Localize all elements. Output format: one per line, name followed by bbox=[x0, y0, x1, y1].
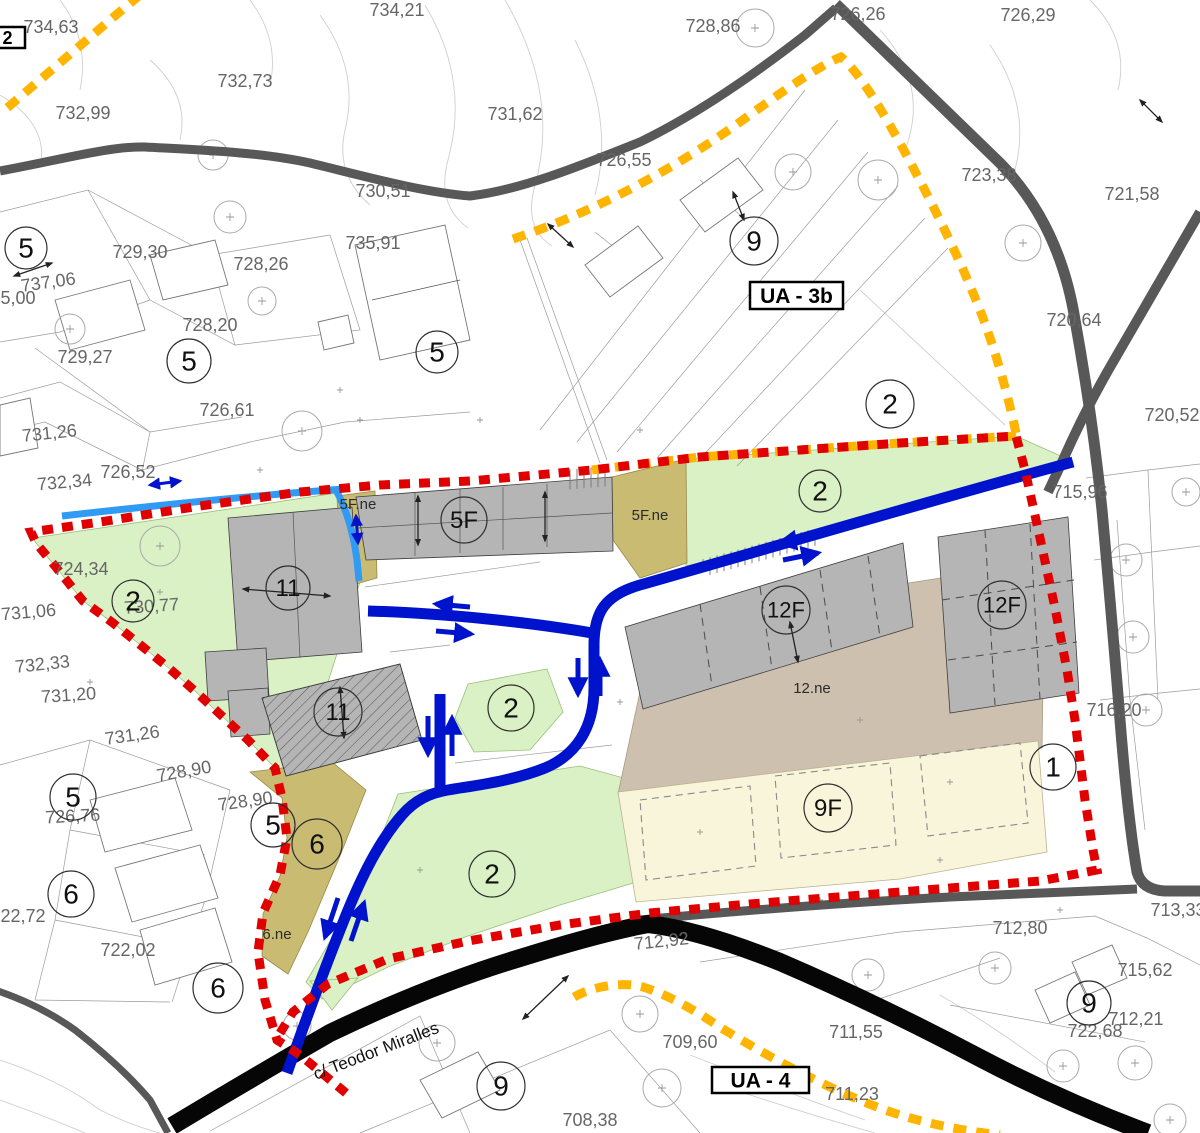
zoning-plan-map: 734,21734,63732,99732,73731,62728,86726,… bbox=[0, 0, 1200, 1133]
elevation-label: 708,38 bbox=[562, 1110, 617, 1130]
zone-number: 11 bbox=[276, 575, 301, 602]
elevation-label: 716,20 bbox=[1086, 700, 1141, 720]
elevation-label: 711,23 bbox=[825, 1084, 879, 1104]
elevation-label: 735,00 bbox=[0, 288, 36, 308]
sector-box-text: UA - 4 bbox=[731, 1070, 791, 1093]
zone-number: 12F bbox=[983, 592, 1021, 617]
elevation-label: 712,80 bbox=[992, 918, 1047, 938]
elevation-label: 721,58 bbox=[1104, 184, 1159, 204]
zone-number: 5 bbox=[429, 337, 445, 368]
area-use-label: 12.ne bbox=[793, 680, 831, 697]
elevation-label: 726,29 bbox=[1000, 5, 1055, 25]
sector-box-text: 2 bbox=[2, 28, 12, 48]
zone-number: 11 bbox=[326, 699, 351, 726]
elevation-label: 726,55 bbox=[596, 150, 651, 170]
zone-number: 2 bbox=[125, 586, 141, 617]
elevation-label: 728,26 bbox=[233, 254, 288, 274]
zone-number: 9 bbox=[1081, 988, 1097, 1019]
elevation-label: 711,55 bbox=[829, 1022, 883, 1042]
elevation-label: 732,73 bbox=[217, 71, 272, 91]
elevation-label: 712,21 bbox=[1108, 1009, 1163, 1029]
zone-number: 5 bbox=[181, 346, 197, 377]
zone-number: 9F bbox=[814, 795, 842, 822]
area-use-label: 5F.ne bbox=[340, 496, 377, 513]
zone-number: 1 bbox=[1045, 752, 1061, 783]
elevation-label: 728,20 bbox=[182, 315, 237, 335]
zone-number: 2 bbox=[882, 389, 898, 420]
area-use-label: 5F.ne bbox=[632, 507, 669, 524]
zone-number: 6 bbox=[210, 973, 226, 1004]
sector-box-label: 2 bbox=[0, 27, 25, 48]
elevation-label: 720,52 bbox=[1144, 405, 1199, 425]
elevation-label: 734,21 bbox=[369, 0, 424, 20]
elevation-label: 722,02 bbox=[100, 940, 155, 960]
elevation-label: 726,26 bbox=[830, 4, 885, 24]
elevation-label: 726,61 bbox=[199, 400, 254, 420]
sector-box-text: UA - 3b bbox=[760, 285, 833, 308]
area-use-label: 6.ne bbox=[262, 926, 291, 943]
elevation-label: 728,86 bbox=[685, 16, 740, 36]
elevation-label: 729,30 bbox=[112, 242, 167, 262]
elevation-label: 731,20 bbox=[40, 683, 96, 707]
elevation-label: 732,99 bbox=[55, 103, 110, 123]
elevation-label: 720,64 bbox=[1046, 310, 1101, 330]
elevation-label: 722,72 bbox=[0, 906, 46, 926]
zone-number: 2 bbox=[484, 859, 500, 890]
elevation-label: 730,51 bbox=[355, 181, 410, 201]
sector-box-label: UA - 3b bbox=[750, 282, 843, 309]
zone-number: 5F bbox=[450, 507, 478, 534]
zone-number: 2 bbox=[812, 476, 828, 507]
elevation-label: 715,62 bbox=[1117, 960, 1172, 980]
elevation-label: 713,33 bbox=[1150, 900, 1200, 920]
elevation-label: 723,38 bbox=[961, 165, 1016, 185]
sector-box-label: UA - 4 bbox=[712, 1067, 809, 1093]
zone-number: 9 bbox=[493, 1071, 509, 1102]
elevation-label: 734,63 bbox=[23, 17, 78, 37]
elevation-label: 726,52 bbox=[100, 462, 155, 482]
elevation-label: 735,91 bbox=[345, 233, 400, 253]
elevation-label: 731,62 bbox=[487, 104, 542, 124]
zone-number: 9 bbox=[746, 226, 762, 257]
zone-number: 5 bbox=[65, 782, 81, 813]
elevation-label: 724,34 bbox=[53, 559, 108, 579]
zone-number: 6 bbox=[309, 829, 325, 860]
elevation-label: 709,60 bbox=[662, 1032, 717, 1052]
elevation-label: 715,96 bbox=[1052, 482, 1107, 502]
zone-number: 12F bbox=[767, 597, 805, 622]
zone-number: 5 bbox=[265, 810, 281, 841]
zone-number: 6 bbox=[63, 879, 79, 910]
elevation-label: 729,27 bbox=[57, 347, 112, 367]
zone-number: 2 bbox=[503, 693, 519, 724]
zone-number: 5 bbox=[18, 233, 34, 264]
